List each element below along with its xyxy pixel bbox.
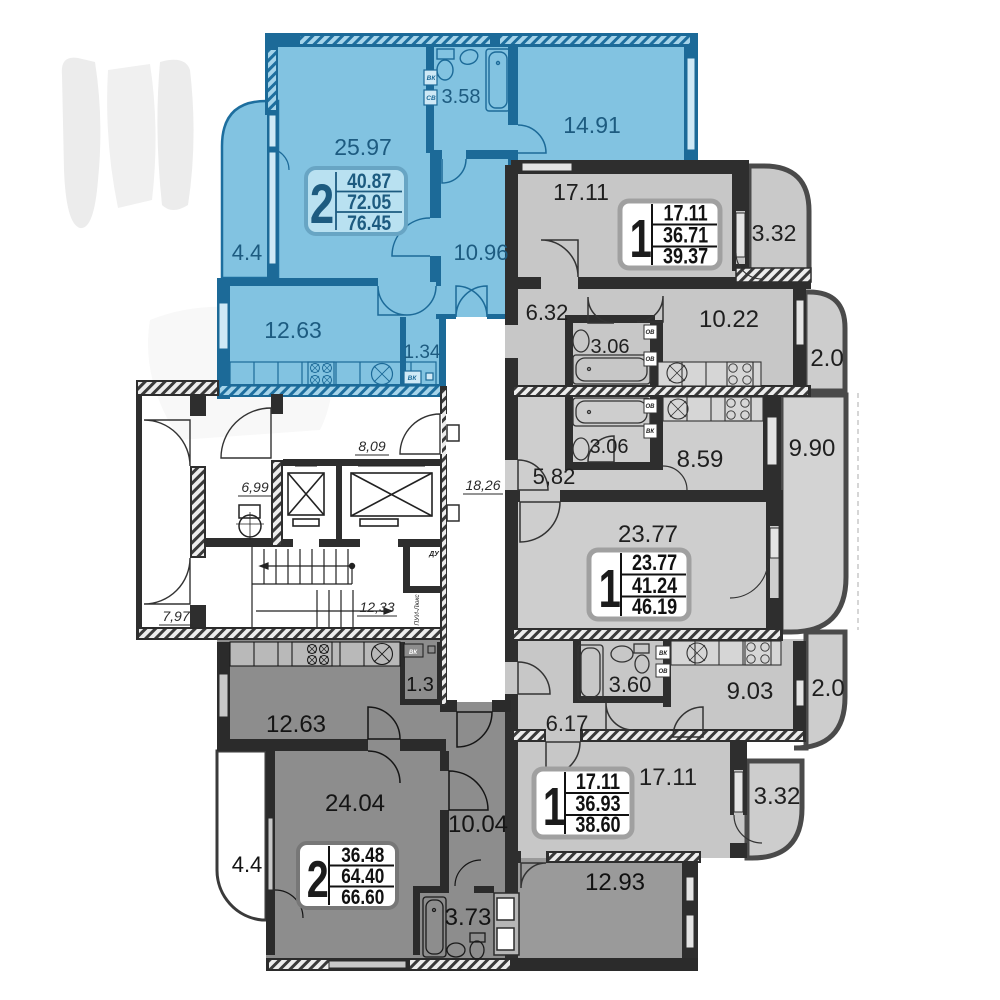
svg-text:8.59: 8.59 (677, 446, 724, 473)
svg-text:ДУ: ДУ (428, 551, 440, 558)
svg-text:23.77: 23.77 (632, 551, 677, 575)
svg-text:2.0: 2.0 (810, 345, 843, 372)
svg-text:ОВ: ОВ (646, 404, 656, 410)
svg-text:76.45: 76.45 (347, 211, 391, 235)
svg-text:ОВ: ОВ (659, 669, 669, 675)
svg-text:ПУИ-Люкс: ПУИ-Люкс (414, 594, 421, 626)
svg-text:10.22: 10.22 (699, 306, 759, 333)
svg-text:18,26: 18,26 (465, 477, 500, 493)
svg-text:7,97: 7,97 (162, 608, 190, 624)
svg-text:9.90: 9.90 (789, 435, 836, 462)
svg-text:12.63: 12.63 (266, 711, 326, 738)
svg-text:24.04: 24.04 (325, 790, 385, 817)
svg-text:3.32: 3.32 (754, 783, 801, 810)
svg-text:ВК: ВК (427, 75, 437, 82)
svg-text:1: 1 (543, 777, 565, 837)
svg-text:1.34: 1.34 (404, 342, 441, 363)
svg-text:17.11: 17.11 (664, 202, 708, 226)
svg-text:1: 1 (630, 209, 652, 269)
svg-text:ВК: ВК (659, 651, 668, 657)
svg-text:46.19: 46.19 (632, 595, 677, 619)
svg-text:5,82: 5,82 (533, 464, 576, 489)
svg-text:2: 2 (307, 850, 329, 909)
svg-text:64.40: 64.40 (341, 866, 384, 889)
svg-text:17.11: 17.11 (553, 179, 609, 205)
svg-text:3.58: 3.58 (442, 86, 481, 108)
svg-text:2: 2 (310, 173, 334, 235)
svg-text:ВК: ВК (408, 375, 418, 382)
svg-text:10.04: 10.04 (448, 811, 508, 838)
svg-text:СВ: СВ (426, 95, 436, 102)
svg-text:9.03: 9.03 (727, 678, 774, 705)
svg-text:4.4: 4.4 (232, 852, 263, 877)
svg-text:4.4: 4.4 (232, 240, 263, 265)
svg-text:23.77: 23.77 (618, 521, 678, 548)
svg-text:6.32: 6.32 (526, 300, 569, 325)
svg-text:6,99: 6,99 (241, 479, 268, 495)
svg-text:ВК: ВК (409, 650, 418, 656)
svg-text:66.60: 66.60 (341, 887, 384, 910)
svg-text:12.63: 12.63 (264, 317, 322, 343)
svg-text:36.48: 36.48 (341, 845, 384, 868)
svg-text:6.17: 6.17 (546, 711, 589, 736)
svg-text:ОВ: ОВ (646, 330, 656, 336)
svg-text:17.11: 17.11 (576, 770, 620, 794)
svg-text:25.97: 25.97 (334, 134, 392, 160)
svg-text:3.06: 3.06 (591, 336, 630, 358)
svg-text:17.11: 17.11 (639, 764, 697, 791)
svg-text:39.37: 39.37 (663, 245, 708, 269)
svg-text:12,33: 12,33 (359, 599, 394, 615)
svg-text:38.60: 38.60 (575, 813, 620, 837)
svg-text:3.73: 3.73 (445, 904, 492, 931)
svg-text:2.0: 2.0 (811, 675, 844, 702)
svg-text:10.96: 10.96 (453, 240, 508, 265)
svg-text:ОВ: ОВ (646, 357, 656, 363)
svg-text:3.06: 3.06 (590, 436, 629, 458)
svg-text:14.91: 14.91 (563, 112, 621, 138)
svg-text:1.3: 1.3 (406, 674, 434, 696)
svg-text:1: 1 (599, 559, 621, 619)
svg-text:8,09: 8,09 (358, 438, 385, 454)
svg-text:12.93: 12.93 (585, 869, 645, 896)
svg-text:ВК: ВК (646, 429, 655, 435)
svg-text:3.32: 3.32 (752, 220, 797, 246)
svg-text:3.60: 3.60 (609, 672, 652, 697)
